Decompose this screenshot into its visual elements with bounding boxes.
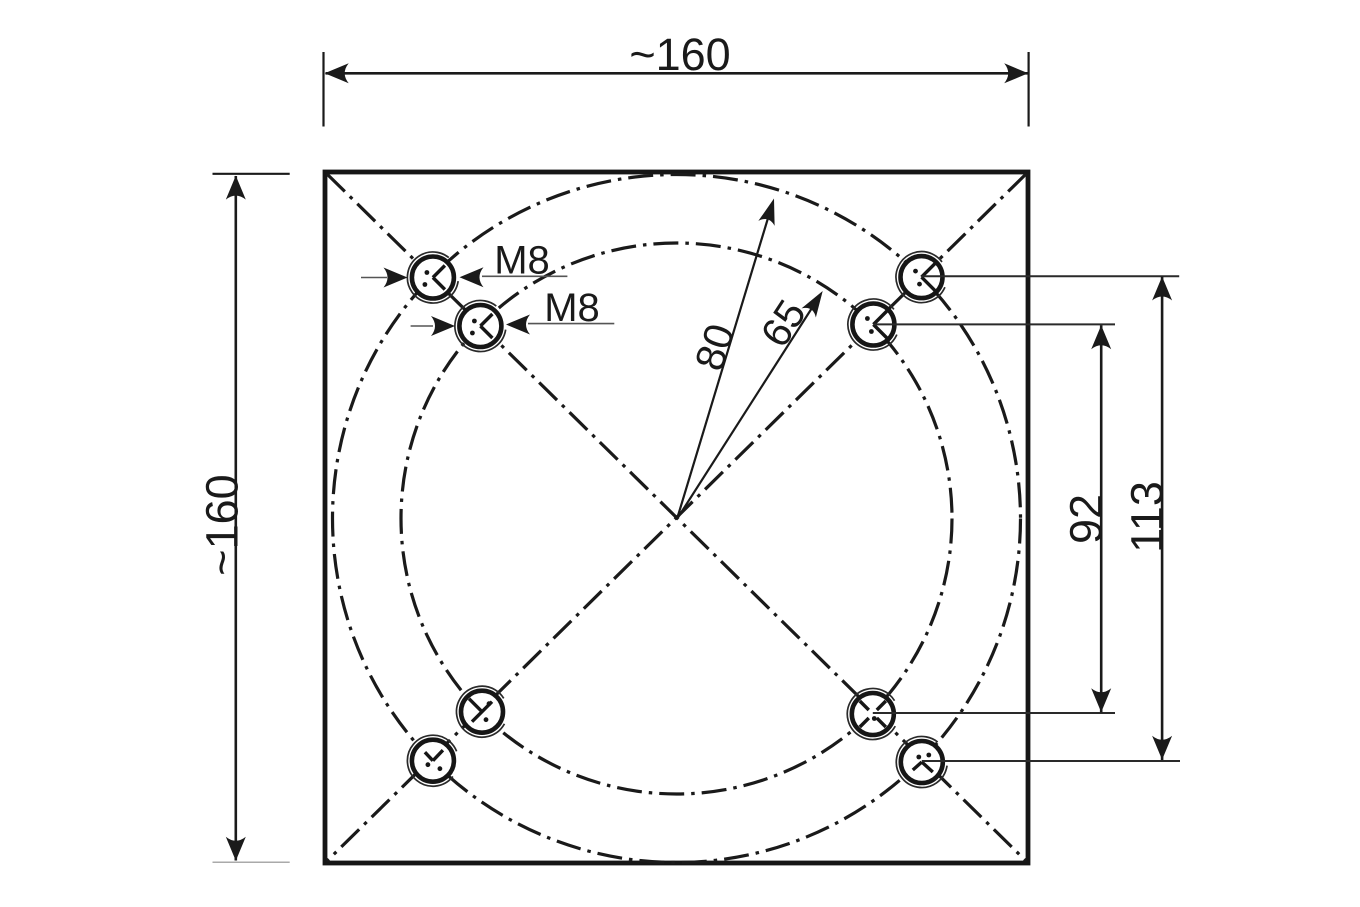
svg-text:M8: M8	[494, 239, 550, 283]
svg-text:M8: M8	[544, 286, 600, 330]
svg-text:~160: ~160	[197, 474, 248, 575]
svg-text:65: 65	[752, 292, 815, 355]
svg-text:~160: ~160	[629, 29, 730, 80]
svg-text:113: 113	[1122, 481, 1173, 553]
svg-text:92: 92	[1061, 494, 1112, 544]
